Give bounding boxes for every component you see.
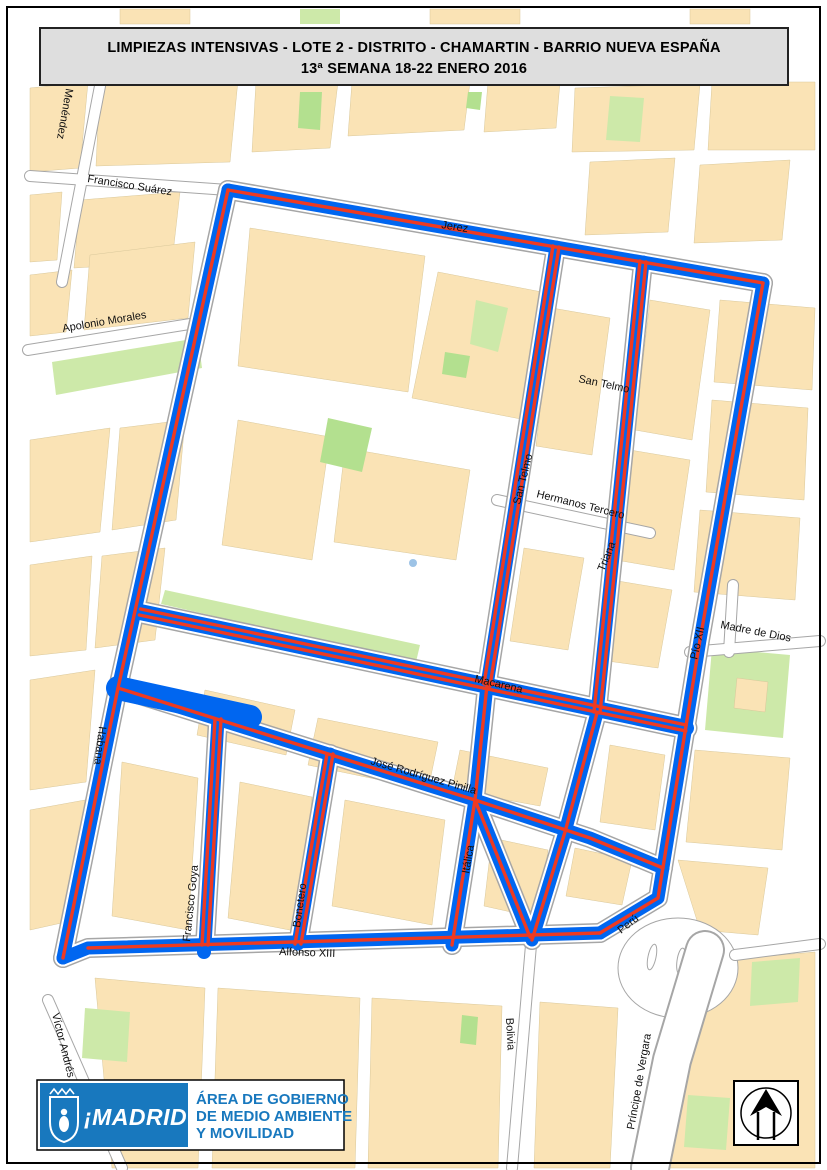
street-label-alfonso-xiii: Alfonso XIII	[279, 946, 336, 960]
title-banner: LIMPIEZAS INTENSIVAS - LOTE 2 - DISTRITO…	[40, 28, 788, 85]
street-label-bolivia: Bolivia	[503, 1018, 517, 1052]
department-line3: Y MOVILIDAD	[196, 1125, 294, 1142]
map-page: Menéndez Francisco Suárez Jerez Apolonio…	[0, 0, 827, 1170]
madrid-logo: ¡MADRID! ÁREA DE GOBIERNO DE MEDIO AMBIE…	[37, 1080, 352, 1150]
map-title-line2: 13ª SEMANA 18-22 ENERO 2016	[301, 61, 527, 77]
north-arrow	[734, 1081, 798, 1145]
cleaning-route-map: Menéndez Francisco Suárez Jerez Apolonio…	[0, 0, 827, 1170]
department-line2: DE MEDIO AMBIENTE	[196, 1108, 352, 1125]
madrid-logo-text: ¡MADRID!	[84, 1104, 195, 1130]
fountain-dot	[409, 559, 417, 567]
map-title-line1: LIMPIEZAS INTENSIVAS - LOTE 2 - DISTRITO…	[107, 38, 721, 56]
department-line1: ÁREA DE GOBIERNO	[196, 1091, 349, 1108]
